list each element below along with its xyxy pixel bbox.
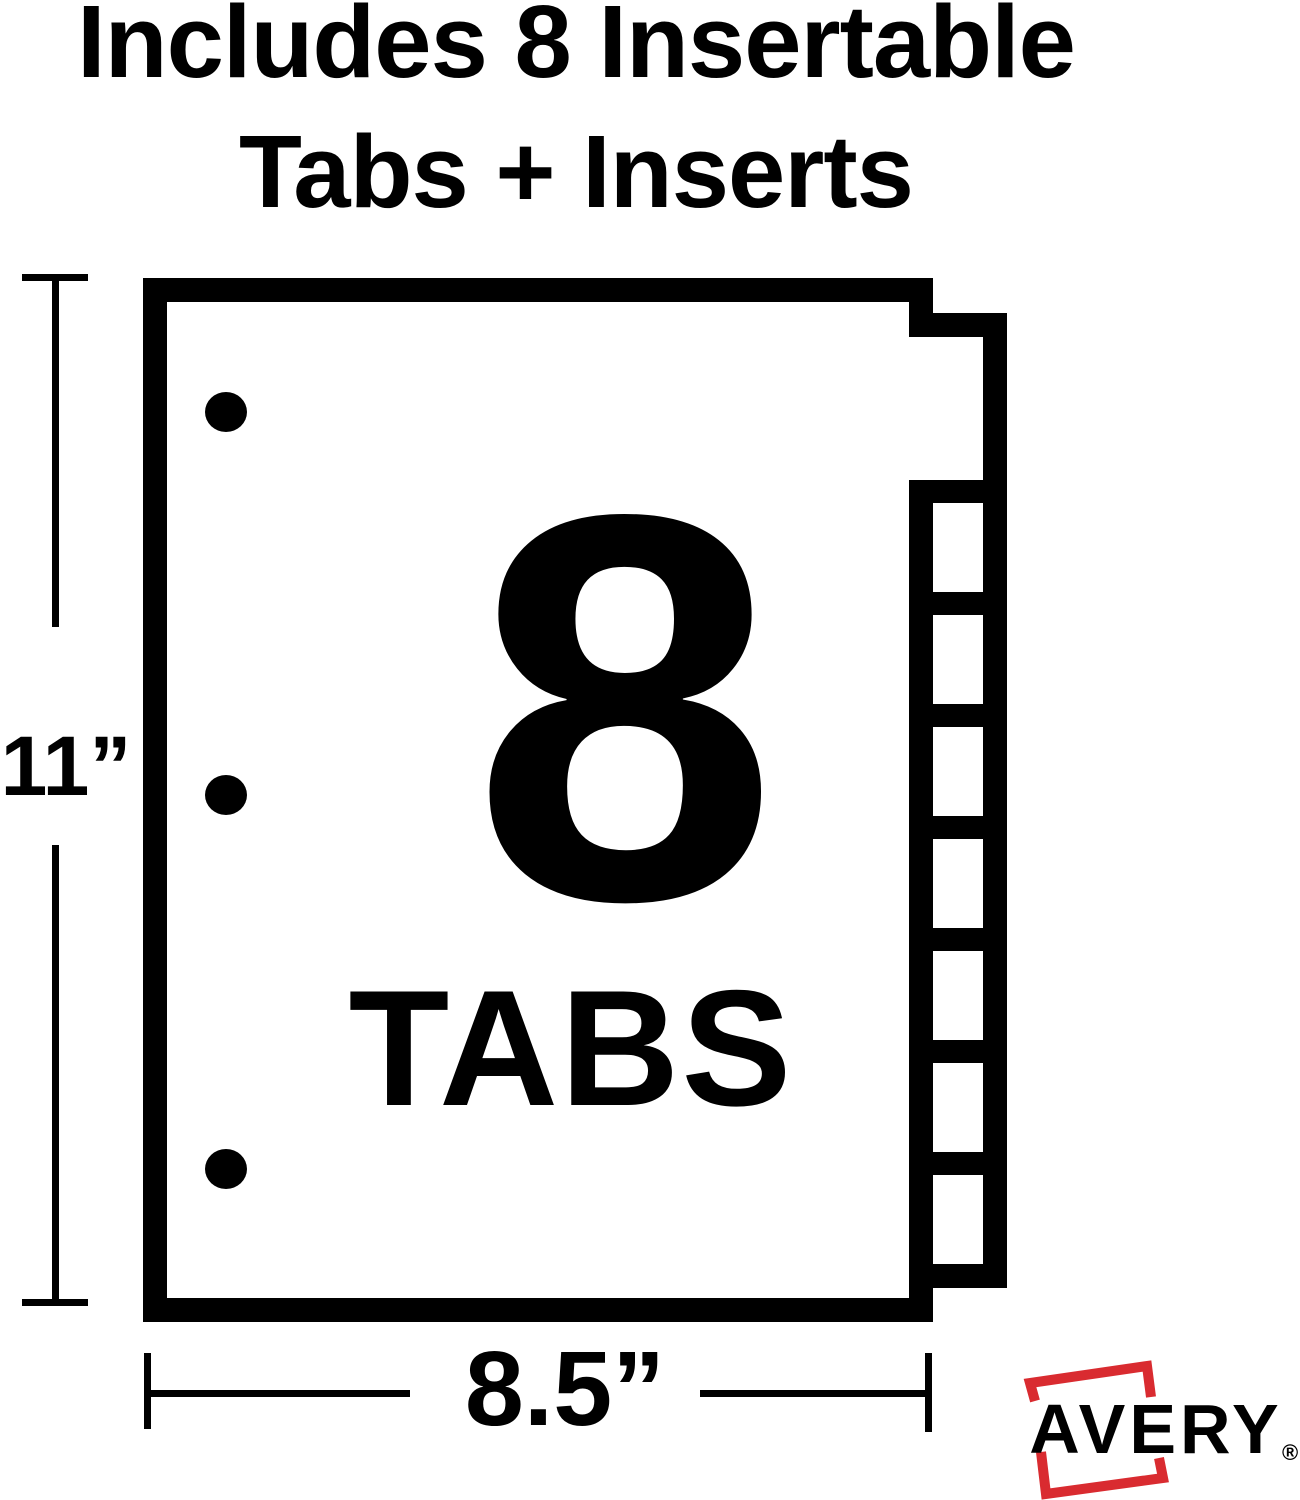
width-dim-line-right xyxy=(700,1390,930,1397)
width-dim-label: 8.5” xyxy=(465,1330,665,1448)
height-dim-label: 11” xyxy=(1,719,132,813)
avery-logo: AVERY ® xyxy=(1029,1366,1298,1494)
sheet-bottom-border xyxy=(143,1298,933,1322)
width-dim-line-left xyxy=(150,1390,410,1397)
punch-holes xyxy=(205,392,247,1189)
tab-strip xyxy=(909,313,1007,1288)
sheet-left-border xyxy=(143,278,167,1322)
tab-window-4 xyxy=(933,839,983,928)
punch-hole-2 xyxy=(205,775,247,815)
big-number-label: 8 xyxy=(472,400,778,1015)
tab-window-5 xyxy=(933,951,983,1040)
tab-window-7 xyxy=(933,1175,983,1264)
divider-sheet: 8 TABS xyxy=(143,278,1007,1322)
product-diagram: Includes 8 Insertable Tabs + Inserts 8 xyxy=(0,0,1300,1500)
logo-wordmark: AVERY xyxy=(1029,1390,1282,1468)
height-dimension: 11” xyxy=(1,274,132,1306)
sheet-top-border xyxy=(143,278,933,302)
tab-window-3 xyxy=(933,727,983,816)
height-dim-line-lower xyxy=(52,845,59,1303)
width-dim-tick-left xyxy=(144,1353,151,1429)
page-title-line-2: Tabs + Inserts xyxy=(239,114,913,229)
tab-window-1 xyxy=(933,503,983,592)
tab-window-6 xyxy=(933,1063,983,1152)
big-tabs-label: TABS xyxy=(349,956,794,1140)
page-title-line-1: Includes 8 Insertable xyxy=(77,0,1075,99)
tab-open-top xyxy=(909,337,983,480)
width-dim-tick-right xyxy=(925,1353,932,1432)
punch-hole-1 xyxy=(205,392,247,432)
height-dim-tick-bottom xyxy=(22,1299,88,1306)
width-dimension: 8.5” xyxy=(144,1330,932,1448)
punch-hole-3 xyxy=(205,1149,247,1189)
tab-window-2 xyxy=(933,615,983,704)
logo-registered-icon: ® xyxy=(1282,1440,1298,1465)
height-dim-line-upper xyxy=(52,274,59,627)
